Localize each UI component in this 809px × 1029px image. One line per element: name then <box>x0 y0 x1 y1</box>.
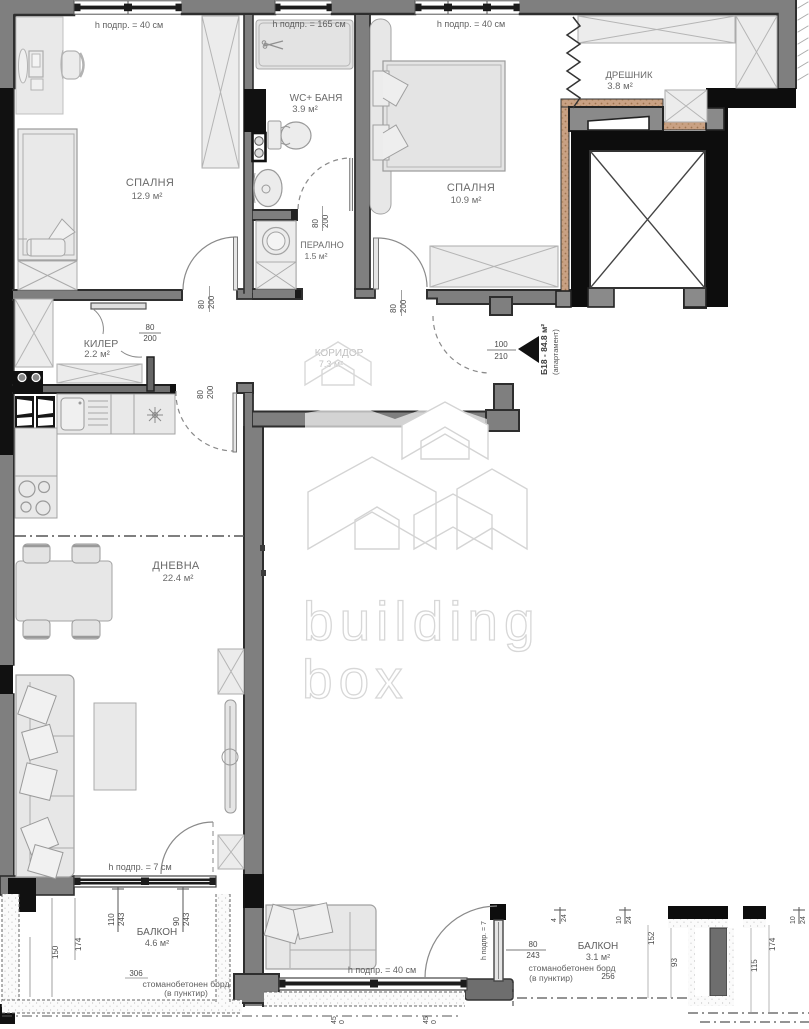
svg-text:243: 243 <box>117 912 126 926</box>
svg-text:10: 10 <box>616 916 623 924</box>
svg-text:80: 80 <box>389 304 398 313</box>
svg-text:h подпр. = 165 см: h подпр. = 165 см <box>272 19 345 29</box>
svg-text:(в пунктир): (в пунктир) <box>164 988 208 998</box>
svg-text:1.5 м²: 1.5 м² <box>304 251 327 261</box>
svg-text:h подпр. = 40 см: h подпр. = 40 см <box>348 965 416 975</box>
svg-text:БАЛКОН: БАЛКОН <box>137 927 178 938</box>
svg-text:200: 200 <box>206 385 215 399</box>
svg-text:box: box <box>302 648 409 710</box>
svg-text:(в пунктир): (в пунктир) <box>529 973 573 983</box>
svg-text:3.8 м²: 3.8 м² <box>607 81 633 92</box>
svg-text:24: 24 <box>561 914 568 922</box>
svg-text:200: 200 <box>143 334 157 343</box>
svg-text:БАЛКОН: БАЛКОН <box>578 941 619 952</box>
svg-text:256: 256 <box>601 972 615 981</box>
svg-text:h подпр. = 7: h подпр. = 7 <box>481 921 488 960</box>
svg-text:24: 24 <box>626 916 633 924</box>
svg-text:110: 110 <box>107 913 116 926</box>
svg-text:h подпр. = 40 см: h подпр. = 40 см <box>437 19 505 29</box>
svg-text:24: 24 <box>800 916 807 924</box>
svg-text:4: 4 <box>551 918 558 922</box>
svg-text:ДНЕВНА: ДНЕВНА <box>152 560 200 572</box>
svg-text:0: 0 <box>339 1020 346 1024</box>
svg-text:WC+ БАНЯ: WC+ БАНЯ <box>290 93 343 104</box>
svg-text:СПАЛНЯ: СПАЛНЯ <box>447 182 495 194</box>
svg-text:45: 45 <box>331 1016 338 1024</box>
svg-text:4.6 м²: 4.6 м² <box>145 938 169 948</box>
svg-text:h подпр. = 40 см: h подпр. = 40 см <box>95 20 163 30</box>
svg-text:22.4 м²: 22.4 м² <box>163 573 194 584</box>
svg-text:80: 80 <box>197 300 206 309</box>
svg-text:ПЕРАЛНО: ПЕРАЛНО <box>300 240 343 250</box>
svg-text:100: 100 <box>494 340 508 349</box>
svg-text:80: 80 <box>529 940 538 949</box>
svg-text:200: 200 <box>207 295 216 309</box>
svg-text:80: 80 <box>196 390 205 399</box>
svg-text:210: 210 <box>494 352 508 361</box>
svg-text:12.9 м²: 12.9 м² <box>132 191 163 202</box>
svg-text:200: 200 <box>399 299 408 313</box>
svg-text:ДРЕШНИК: ДРЕШНИК <box>605 70 653 81</box>
svg-text:243: 243 <box>526 951 540 960</box>
svg-text:3.1 м²: 3.1 м² <box>586 952 610 962</box>
svg-text:10: 10 <box>790 916 797 924</box>
svg-text:Б18 - 84.8 м²: Б18 - 84.8 м² <box>539 324 549 375</box>
svg-text:243: 243 <box>182 912 191 926</box>
svg-text:СПАЛНЯ: СПАЛНЯ <box>126 177 174 189</box>
svg-text:h подпр. = 7 см: h подпр. = 7 см <box>108 862 171 872</box>
svg-text:80: 80 <box>146 323 155 332</box>
svg-text:90: 90 <box>172 917 181 926</box>
svg-text:0: 0 <box>431 1020 438 1024</box>
svg-text:10.9 м²: 10.9 м² <box>451 195 482 206</box>
svg-text:2.2 м²: 2.2 м² <box>84 349 110 360</box>
svg-text:building: building <box>303 590 541 652</box>
svg-text:3.9 м²: 3.9 м² <box>292 104 318 115</box>
svg-text:306: 306 <box>129 969 143 978</box>
svg-text:45: 45 <box>423 1016 430 1024</box>
svg-text:80: 80 <box>311 219 320 228</box>
svg-text:(апартамент): (апартамент) <box>551 329 560 375</box>
